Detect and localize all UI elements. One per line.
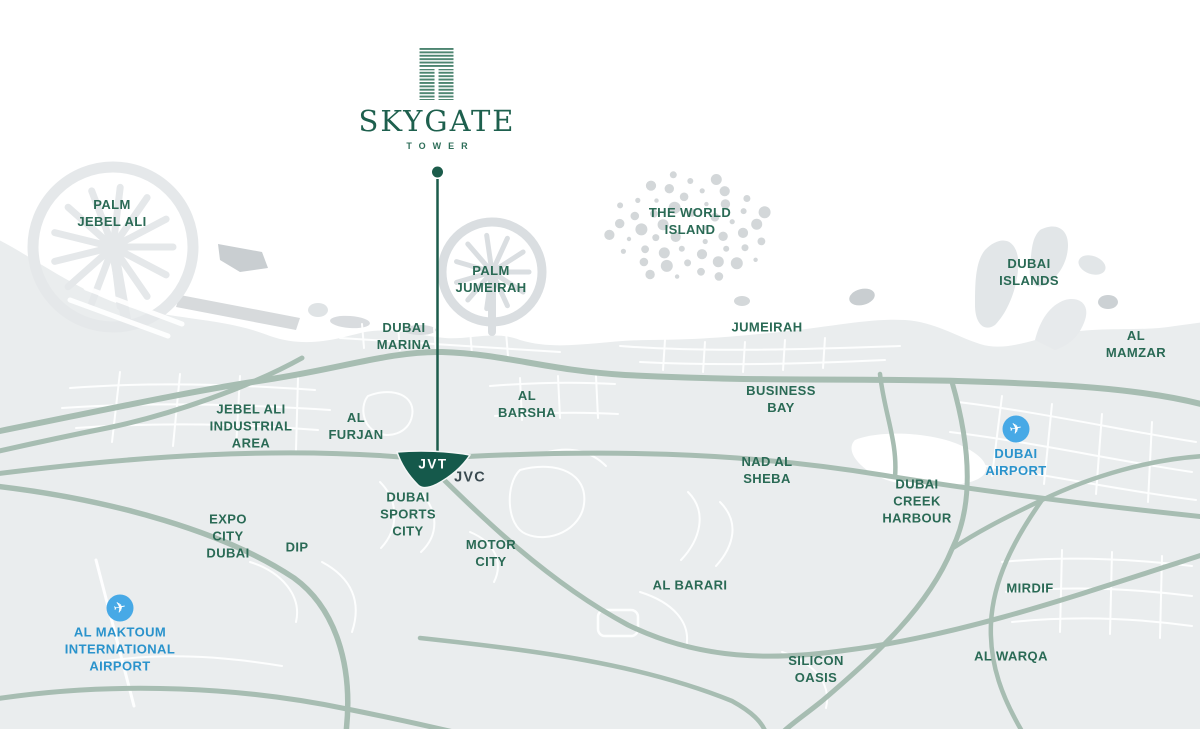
logo-title: SKYGATE — [359, 104, 516, 138]
logo-subtitle: TOWER — [399, 141, 474, 151]
jvt-badge-label: JVT — [418, 457, 447, 472]
marina-block — [404, 325, 436, 335]
coastal-islet — [734, 296, 750, 306]
coastal-islet — [308, 303, 328, 317]
skygate-logo: SKYGATE TOWER — [359, 48, 516, 151]
leader-dot — [432, 167, 443, 178]
map-canvas: PALM JEBEL ALITHE WORLD ISLANDPALM JUMEI… — [0, 0, 1200, 729]
dubai-map — [0, 0, 1200, 729]
tower-building-icon — [420, 48, 454, 100]
